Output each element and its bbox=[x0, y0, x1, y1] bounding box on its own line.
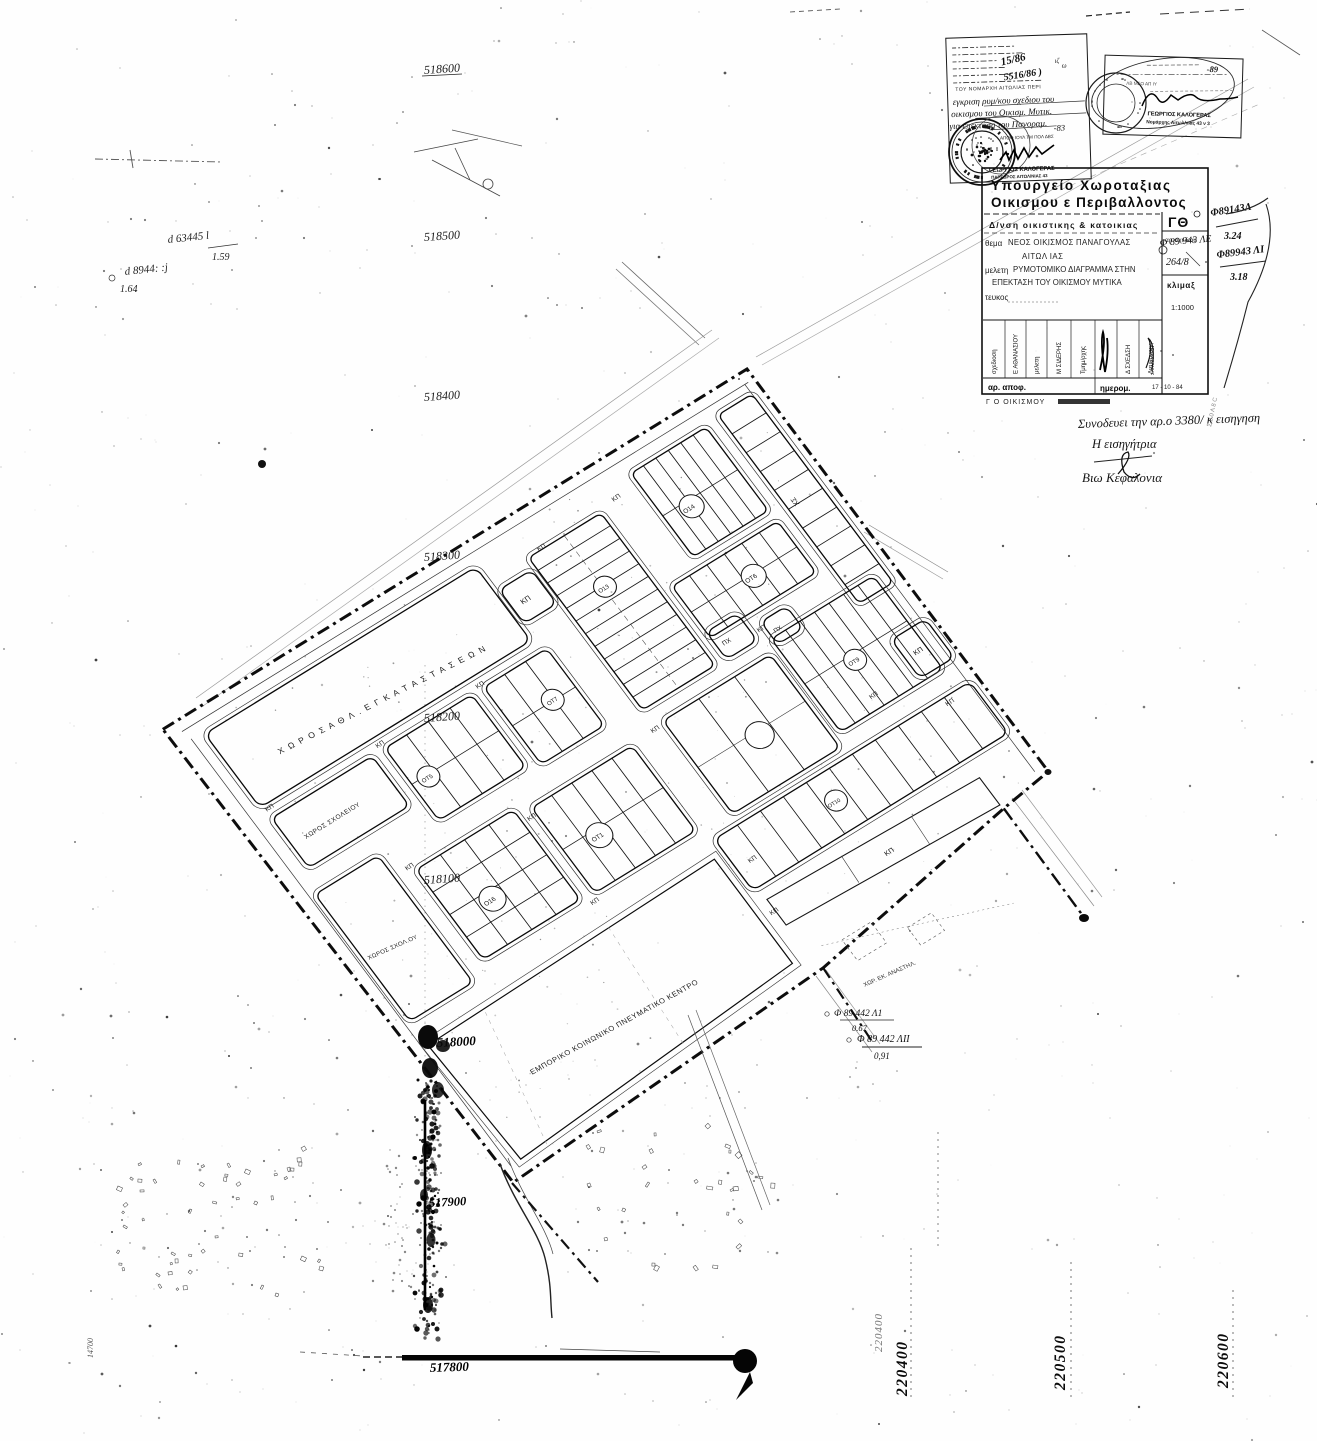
svg-text:ημερομ.: ημερομ. bbox=[1100, 384, 1131, 393]
svg-text:ω: ω bbox=[1062, 61, 1067, 69]
svg-text:κλιμαξ: κλιμαξ bbox=[1167, 281, 1195, 290]
svg-text:1.64: 1.64 bbox=[120, 284, 138, 295]
svg-text:μελετη: μελετη bbox=[985, 266, 1008, 275]
svg-text:Βιω Κεφαλονια: Βιω Κεφαλονια bbox=[1082, 470, 1163, 485]
svg-text:220400: 220400 bbox=[873, 1313, 885, 1352]
svg-text:1:1000: 1:1000 bbox=[1171, 303, 1194, 312]
svg-text:517900: 517900 bbox=[428, 1194, 467, 1210]
svg-text:Φ 89 442 ΛΙΙ: Φ 89 442 ΛΙΙ bbox=[857, 1034, 910, 1045]
svg-text:14700: 14700 bbox=[86, 1338, 95, 1358]
svg-text:τευκος: τευκος bbox=[985, 293, 1008, 302]
svg-text:220400: 220400 bbox=[894, 1341, 911, 1398]
svg-text:Τμημ/ρχης: Τμημ/ρχης bbox=[1081, 346, 1087, 374]
svg-text:518400: 518400 bbox=[424, 388, 461, 404]
svg-text:Οικισμου ε Περιβαλλοντος: Οικισμου ε Περιβαλλοντος bbox=[991, 195, 1187, 210]
svg-text:0,91: 0,91 bbox=[874, 1051, 890, 1061]
svg-text:Δ/νση οικιστικης & κατοικια: Δ/νση οικιστικης & κατοικιας bbox=[989, 220, 1139, 230]
svg-text:264/8: 264/8 bbox=[1166, 257, 1189, 268]
svg-text:ΑΙΤΩΛ ΙΑΣ: ΑΙΤΩΛ ΙΑΣ bbox=[1022, 252, 1063, 261]
svg-text:ΡΥΜΟΤΟΜΙΚΟ ΔΙΑΓΡΑΜΜΑ ΣΤΗΝ: ΡΥΜΟΤΟΜΙΚΟ ΔΙΑΓΡΑΜΜΑ ΣΤΗΝ bbox=[1013, 265, 1136, 274]
svg-text:3.24: 3.24 bbox=[1223, 231, 1242, 242]
svg-text:Η εισηγήτρια: Η εισηγήτρια bbox=[1091, 437, 1157, 451]
svg-text:-83: -83 bbox=[1053, 123, 1065, 133]
svg-text:Ε ΑΘΑΝΑΣΙΟΥ: Ε ΑΘΑΝΑΣΙΟΥ bbox=[1014, 334, 1020, 374]
svg-text:Γ Ο ΟΙΚΙΣΜΟΥ: Γ Ο ΟΙΚΙΣΜΟΥ bbox=[986, 399, 1045, 406]
svg-text:518500: 518500 bbox=[424, 228, 461, 244]
svg-text:17 - 10 - 84: 17 - 10 - 84 bbox=[1152, 385, 1183, 391]
svg-text:ΝΕΟΣ ΟΙΚΙΣΜΟΣ ΠΑΝΑΓΟΥΛΑΣ: ΝΕΟΣ ΟΙΚΙΣΜΟΣ ΠΑΝΑΓΟΥΛΑΣ bbox=[1008, 238, 1131, 247]
svg-text:3.18: 3.18 bbox=[1229, 272, 1248, 283]
svg-text:αρ. αποφ.: αρ. αποφ. bbox=[988, 383, 1026, 392]
svg-text:θεμα: θεμα bbox=[985, 239, 1003, 248]
svg-text:μελετη: μελετη bbox=[1035, 356, 1041, 374]
svg-text:ΣΑΓΛΑΝΙΚΗΣ: ΣΑΓΛΑΝΙΚΗΣ bbox=[1150, 347, 1155, 375]
svg-text:220500: 220500 bbox=[1052, 1335, 1069, 1392]
svg-text:ΕΠΕΚΤΑΣΗ ΤΟΥ ΟΙΚΙΣΜΟΥ ΜΥΤΙΚΑ: ΕΠΕΚΤΑΣΗ ΤΟΥ ΟΙΚΙΣΜΟΥ ΜΥΤΙΚΑ bbox=[992, 278, 1123, 287]
svg-text:ΓΘ: ΓΘ bbox=[1168, 214, 1189, 230]
svg-text:Δ ΣΧΕΔΣΗ: Δ ΣΧΕΔΣΗ bbox=[1126, 345, 1132, 374]
svg-text:220600: 220600 bbox=[1215, 1333, 1232, 1390]
svg-text:ΛΒ ΜΣΟ ΑΠ ΙΥ: ΛΒ ΜΣΟ ΑΠ ΙΥ bbox=[1126, 81, 1157, 87]
svg-text:517800: 517800 bbox=[430, 1359, 470, 1375]
svg-text:-89: -89 bbox=[1207, 64, 1219, 74]
svg-text:σχεδιοση: σχεδιοση bbox=[992, 349, 998, 374]
svg-text:Υπουργείο Χωροταξιας: Υπουργείο Χωροταξιας bbox=[991, 178, 1172, 193]
svg-text:1.59: 1.59 bbox=[212, 252, 230, 263]
svg-text:0.67: 0.67 bbox=[852, 1023, 868, 1033]
svg-text:Φ 89 442 Λ1: Φ 89 442 Λ1 bbox=[834, 1009, 882, 1019]
svg-text:Μ ΣΙΔΕΡΗΣ: Μ ΣΙΔΕΡΗΣ bbox=[1057, 342, 1063, 374]
